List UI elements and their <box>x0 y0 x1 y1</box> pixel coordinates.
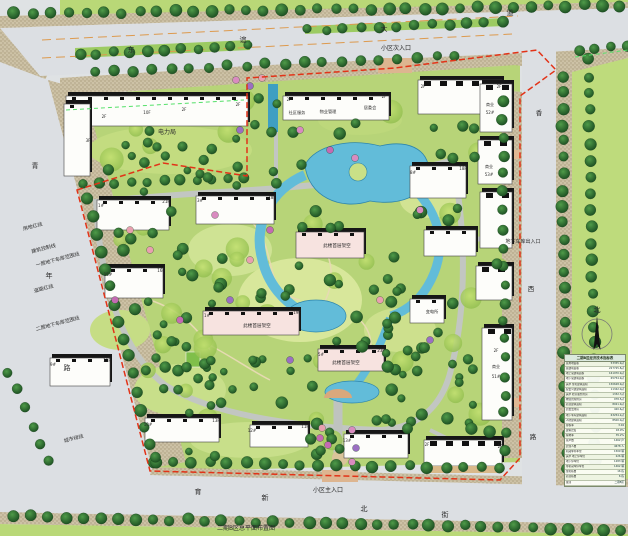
roof-detail <box>350 233 354 236</box>
tree-icon <box>176 43 186 53</box>
tree-icon <box>222 60 233 71</box>
tree-icon <box>408 519 418 529</box>
tree-icon <box>185 457 196 468</box>
tree-icon <box>184 64 194 74</box>
building <box>203 311 299 335</box>
map-canvas: 东谊大道青年路香西路育新北街小区次入口小区主入口地下车库出入口电力局社区服务物业… <box>0 0 628 536</box>
tree-icon <box>208 300 216 308</box>
tree-icon <box>296 160 306 170</box>
tree-icon <box>391 22 401 32</box>
tree-icon <box>436 3 449 16</box>
floor-tag: 3# <box>197 198 204 203</box>
roof-detail <box>152 97 156 100</box>
property-mgmt-label: 物业管理 <box>320 108 338 115</box>
tree-icon <box>586 271 597 282</box>
roof-detail <box>446 231 450 234</box>
tree-icon <box>167 64 177 74</box>
tree-icon <box>544 1 553 10</box>
tree-icon <box>469 124 479 134</box>
roof-detail <box>241 312 245 315</box>
roof-detail <box>250 197 254 200</box>
tree-icon <box>199 516 209 526</box>
tree-icon <box>103 164 114 175</box>
floor-tag: 3F <box>86 138 92 143</box>
tree-icon <box>377 297 384 304</box>
commercial-51-label-a: 2F <box>494 348 500 353</box>
tree-icon <box>151 6 162 17</box>
roof-detail <box>72 97 76 100</box>
roof-detail <box>70 105 74 108</box>
tree-icon <box>441 462 452 473</box>
building <box>480 84 512 132</box>
tree-icon <box>596 0 609 12</box>
tree-icon <box>91 50 101 60</box>
tree-icon <box>123 349 135 361</box>
tree-icon <box>139 157 149 167</box>
tree-icon <box>389 519 399 529</box>
roof-detail <box>257 312 261 315</box>
floor-tag: 2F <box>236 102 242 107</box>
tree-icon <box>317 57 327 67</box>
tree-icon <box>152 354 161 363</box>
power-bureau-label: 电力局 <box>158 128 176 136</box>
roof-detail <box>462 441 469 446</box>
tree-icon <box>297 222 307 232</box>
floor-tag: 2F <box>497 84 503 89</box>
tree-icon <box>271 178 281 188</box>
roof-detail <box>382 435 386 438</box>
tree-icon <box>125 233 136 244</box>
roof-detail <box>353 97 357 100</box>
tree-icon <box>586 254 598 266</box>
road-right-char-1: 西 <box>528 285 535 293</box>
tree-icon <box>42 511 53 522</box>
floor-tag: 2F <box>382 94 388 99</box>
tree-icon <box>150 452 160 462</box>
canopy-icon <box>194 336 217 359</box>
tree-icon <box>383 274 393 284</box>
tree-icon <box>455 378 464 387</box>
roof-detail <box>56 359 60 362</box>
tree-icon <box>372 416 382 426</box>
tree-icon <box>184 167 191 174</box>
tree-icon <box>579 0 590 10</box>
tree-icon <box>477 462 487 472</box>
tree-icon <box>351 119 360 128</box>
tree-icon <box>174 174 185 185</box>
tree-icon <box>447 298 458 309</box>
tree-icon <box>143 178 152 187</box>
tree-icon <box>500 373 510 383</box>
tree-icon <box>356 341 368 353</box>
tree-icon <box>203 172 213 182</box>
tree-icon <box>266 127 276 137</box>
tree-icon <box>128 66 139 77</box>
roof-detail <box>305 97 309 100</box>
tree-icon <box>7 6 20 19</box>
roof-detail <box>273 312 277 315</box>
tree-icon <box>20 402 30 412</box>
roof-detail <box>183 419 187 422</box>
tree-icon <box>402 423 413 434</box>
roof-detail <box>136 97 140 100</box>
floor-tag: 1# <box>204 313 211 318</box>
roof-detail <box>302 233 306 236</box>
tree-icon <box>494 463 504 473</box>
tree-icon <box>276 397 288 409</box>
tree-icon <box>167 336 177 346</box>
tree-icon <box>472 1 484 13</box>
tree-icon <box>35 439 45 449</box>
tree-icon <box>559 168 570 179</box>
tree-icon <box>412 52 423 63</box>
canopy-icon <box>444 334 462 352</box>
tree-icon <box>112 513 124 525</box>
tree-icon <box>295 262 303 270</box>
roof-detail <box>135 201 139 204</box>
tree-icon <box>278 459 288 469</box>
roof-detail <box>372 350 376 353</box>
tree-icon <box>442 520 454 532</box>
tree-icon <box>337 517 349 529</box>
tree-icon <box>405 460 415 470</box>
tree-icon <box>330 459 342 471</box>
tree-icon <box>433 51 442 60</box>
tree-icon <box>588 289 598 299</box>
tree-icon <box>187 6 199 18</box>
floor-tag: 13# <box>343 438 352 443</box>
tree-icon <box>128 368 139 379</box>
tree-icon <box>127 178 136 187</box>
tree-icon <box>441 412 453 424</box>
floor-tag: 2F <box>287 97 293 102</box>
tree-icon <box>374 55 384 65</box>
tree-icon <box>160 175 170 185</box>
tree-icon <box>312 4 322 14</box>
floor-tag: 12# <box>248 428 257 433</box>
tree-icon <box>369 285 379 295</box>
community-service-label: 社区服务 <box>289 109 307 116</box>
roof-detail <box>432 300 436 303</box>
tree-icon <box>295 461 305 471</box>
tree-icon <box>98 7 109 18</box>
tree-icon <box>465 423 477 435</box>
floor-tag: 10F <box>143 110 151 115</box>
tree-icon <box>419 3 431 15</box>
tree-icon <box>81 193 93 205</box>
tree-icon <box>45 7 56 18</box>
roof-detail <box>369 97 373 100</box>
tree-icon <box>109 47 119 57</box>
tree-icon <box>220 457 232 469</box>
tree-icon <box>280 59 291 70</box>
tree-icon <box>479 17 489 27</box>
tree-icon <box>559 282 571 294</box>
tree-icon <box>297 127 304 134</box>
tree-icon <box>559 267 569 277</box>
roof-detail <box>440 81 447 86</box>
roof-detail <box>199 419 203 422</box>
tree-icon <box>493 522 504 533</box>
entrance-main-label: 小区主入口 <box>313 486 343 494</box>
tree-icon <box>584 88 594 98</box>
tree-icon <box>225 41 235 51</box>
tree-icon <box>332 337 341 346</box>
tree-icon <box>559 152 569 162</box>
tree-icon <box>450 51 460 61</box>
building <box>196 196 274 224</box>
tree-icon <box>159 384 168 393</box>
tree-icon <box>164 516 174 526</box>
roof-detail <box>462 231 466 234</box>
floor-tag: 19F <box>293 310 301 315</box>
tree-icon <box>287 367 295 375</box>
tree-icon <box>250 120 259 129</box>
tree-icon <box>501 281 510 290</box>
roof-detail <box>318 233 322 236</box>
tree-icon <box>455 4 464 13</box>
building <box>97 200 169 230</box>
tree-icon <box>556 200 569 213</box>
commercial-51-label-b: 商业 <box>492 363 500 369</box>
roof-detail <box>72 359 76 362</box>
residents-committee-label: 居委会 <box>364 104 377 111</box>
tree-icon <box>304 517 317 530</box>
indicator-table-title: 二期B区经济技术指标表 <box>565 355 625 362</box>
tree-icon <box>558 86 569 97</box>
tree-icon <box>140 188 148 196</box>
tree-icon <box>178 142 188 152</box>
road-top-char-1: 谊 <box>240 35 247 44</box>
tree-icon <box>498 407 508 417</box>
commercial-53-label-b: 53# <box>485 172 494 177</box>
roof-detail <box>446 441 453 446</box>
tree-icon <box>207 144 217 154</box>
roof-detail <box>337 97 341 100</box>
tree-icon <box>558 103 570 115</box>
tree-icon <box>28 8 39 19</box>
tree-icon <box>182 513 194 525</box>
tree-icon <box>199 155 209 165</box>
floor-tag: 11F <box>103 358 111 363</box>
tree-icon <box>392 54 402 64</box>
tree-icon <box>337 23 347 33</box>
roof-detail <box>430 231 434 234</box>
tree-icon <box>412 366 422 376</box>
roof-detail <box>200 97 204 100</box>
tree-icon <box>233 181 241 189</box>
tree-icon <box>581 523 593 535</box>
tree-icon <box>498 225 509 236</box>
tree-icon <box>310 205 322 217</box>
tree-icon <box>143 138 153 148</box>
tree-icon <box>29 423 38 432</box>
tree-icon <box>337 57 347 67</box>
tree-icon <box>91 228 103 240</box>
road-top-char-2: 大 <box>381 24 388 33</box>
tree-icon <box>153 142 162 151</box>
roof-detail <box>486 85 493 90</box>
building <box>410 166 466 198</box>
tree-icon <box>322 26 331 35</box>
tree-icon <box>558 249 569 260</box>
roof-detail <box>486 193 493 198</box>
tree-icon <box>144 298 152 306</box>
tree-icon <box>64 8 74 18</box>
tree-icon <box>327 147 334 154</box>
roof-detail <box>472 81 479 86</box>
roof-detail <box>143 269 147 272</box>
tree-icon <box>182 342 191 351</box>
tree-icon <box>470 152 480 162</box>
tree-icon <box>586 172 596 182</box>
tree-icon <box>148 515 158 525</box>
tree-icon <box>142 46 153 57</box>
roof-detail <box>432 167 436 170</box>
floor-tag: 2F <box>182 107 188 112</box>
tree-icon <box>385 460 396 471</box>
tree-icon <box>393 287 402 296</box>
roof-detail <box>416 300 420 303</box>
tree-icon <box>114 228 124 238</box>
tree-icon <box>182 362 192 372</box>
tree-icon <box>145 126 154 135</box>
tree-icon <box>295 5 305 15</box>
commercial-52-label-b: 52# <box>486 110 495 115</box>
tree-icon <box>225 4 235 14</box>
canopy-icon <box>229 252 244 267</box>
tree-icon <box>217 253 227 263</box>
tree-icon <box>254 93 264 103</box>
tree-icon <box>326 223 336 233</box>
roof-detail <box>398 435 402 438</box>
road-bottom-char-0: 育 <box>195 487 202 496</box>
tree-icon <box>489 1 502 14</box>
tree-icon <box>409 20 419 30</box>
tree-icon <box>136 6 146 16</box>
tree-icon <box>559 135 569 145</box>
tree-icon <box>214 282 224 292</box>
tree-icon <box>497 185 508 196</box>
tree-icon <box>206 356 215 365</box>
building <box>478 140 512 184</box>
tree-icon <box>144 439 155 450</box>
tree-icon <box>349 459 356 466</box>
tree-icon <box>469 401 477 409</box>
tree-icon <box>335 280 343 288</box>
garage-entrance-label: 地下车库出入口 <box>505 238 540 245</box>
tree-icon <box>399 371 406 378</box>
floor-tag: 10# <box>144 422 153 427</box>
tree-icon <box>320 517 332 529</box>
tree-icon <box>258 6 269 17</box>
tree-icon <box>419 342 430 353</box>
tree-icon <box>112 316 124 328</box>
tree-icon <box>224 174 233 183</box>
tree-icon <box>484 426 496 438</box>
tree-icon <box>574 45 585 56</box>
roof-detail <box>104 97 108 100</box>
tree-icon <box>204 63 214 73</box>
tree-icon <box>500 334 509 343</box>
tree-icon <box>299 56 310 67</box>
tree-icon <box>559 235 569 245</box>
tree-icon <box>403 346 413 356</box>
tree-icon <box>118 334 129 345</box>
tree-icon <box>273 100 281 108</box>
canopy-icon <box>447 386 464 403</box>
roof-detail <box>88 97 92 100</box>
tree-icon <box>161 152 170 161</box>
tree-icon <box>436 149 446 159</box>
floor-tag: 9# <box>50 362 57 367</box>
tree-icon <box>128 152 136 160</box>
tree-icon <box>8 510 20 522</box>
tree-icon <box>386 384 398 396</box>
roof-detail <box>430 441 437 446</box>
building <box>145 418 219 442</box>
tree-icon <box>448 360 456 368</box>
tree-icon <box>259 58 270 69</box>
roof-detail <box>340 350 344 353</box>
tree-icon <box>556 120 569 133</box>
tree-icon <box>287 357 294 364</box>
piloti-label-3: 此楼首层架空 <box>332 359 360 366</box>
roof-detail <box>488 329 495 334</box>
tree-icon <box>385 296 397 308</box>
tree-icon <box>499 244 508 253</box>
tree-icon <box>615 525 625 535</box>
tree-icon <box>209 373 217 381</box>
tree-icon <box>606 42 615 51</box>
road-bottom-char-2: 北 <box>361 505 368 513</box>
tree-icon <box>105 281 115 291</box>
tree-icon <box>430 124 438 132</box>
tree-icon <box>207 401 215 409</box>
tree-icon <box>509 520 520 531</box>
tree-icon <box>421 462 433 474</box>
tree-icon <box>12 384 22 394</box>
tree-icon <box>460 520 470 530</box>
tree-icon <box>416 409 428 421</box>
tree-icon <box>3 368 13 378</box>
tree-icon <box>357 23 367 33</box>
tree-icon <box>443 214 455 226</box>
tree-icon <box>586 221 598 233</box>
tree-icon <box>325 442 332 449</box>
north-label: 北 <box>594 306 601 314</box>
tree-icon <box>324 274 336 286</box>
tree-icon <box>463 354 473 364</box>
tree-icon <box>499 151 510 162</box>
tree-icon <box>584 73 594 83</box>
tree-icon <box>499 133 509 143</box>
floor-tag: 15# <box>104 272 113 277</box>
tree-icon <box>307 381 318 392</box>
tree-icon <box>585 238 596 249</box>
tree-icon <box>147 247 154 254</box>
tree-icon <box>526 1 537 12</box>
tree-icon <box>417 207 424 214</box>
floor-tag: 5# <box>318 352 325 357</box>
tree-icon <box>259 75 266 82</box>
tree-icon <box>560 317 570 327</box>
tree-icon <box>501 352 510 361</box>
tree-icon <box>232 135 240 143</box>
tree-icon <box>501 428 511 438</box>
floor-tag: 2F <box>421 84 427 89</box>
tree-icon <box>382 361 394 373</box>
